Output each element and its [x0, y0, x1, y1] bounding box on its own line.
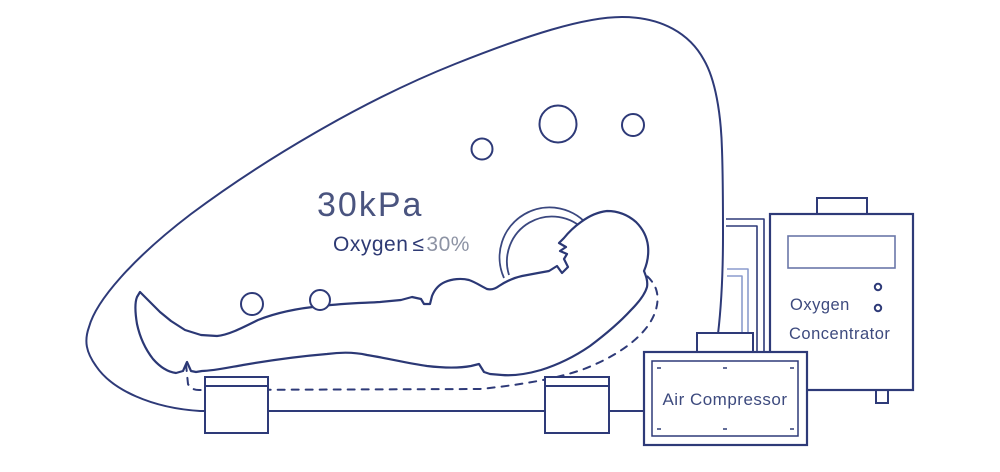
- vent-hole-icon: [472, 139, 493, 160]
- oxygen-concentrator-label-line1: Oxygen: [790, 296, 850, 314]
- vent-hole-icon: [622, 114, 644, 136]
- oxygen-concentrator-label-line2: Concentrator: [789, 325, 890, 343]
- oxygen-word: Oxygen: [333, 233, 408, 256]
- oxygen-limit-value: 30%: [426, 233, 470, 256]
- support-blocks: [205, 377, 609, 433]
- air-compressor-box: Air Compressor: [644, 352, 807, 445]
- compressor-duct-pedestal: [697, 333, 753, 352]
- support-block-right: [545, 377, 609, 433]
- svg-text:Oxygen≤30%: Oxygen≤30%: [333, 233, 470, 256]
- chamber-vent-holes: [472, 106, 645, 160]
- air-compressor-label: Air Compressor: [662, 390, 787, 409]
- knob-icon: [241, 293, 263, 315]
- leq-symbol: ≤: [412, 233, 424, 256]
- concentrator-handle: [817, 198, 867, 214]
- concentrator-display: [788, 236, 895, 268]
- concentrator-foot: [876, 390, 888, 403]
- support-block-left: [205, 377, 268, 433]
- vent-hole-icon: [540, 106, 577, 143]
- chamber-pressure-label: 30kPa: [317, 186, 423, 224]
- knob-icon: [310, 290, 330, 310]
- diagram-canvas: 30kPa Oxygen≤30%: [0, 0, 1000, 472]
- hyperbaric-chamber-diagram: 30kPa Oxygen≤30%: [0, 0, 1000, 472]
